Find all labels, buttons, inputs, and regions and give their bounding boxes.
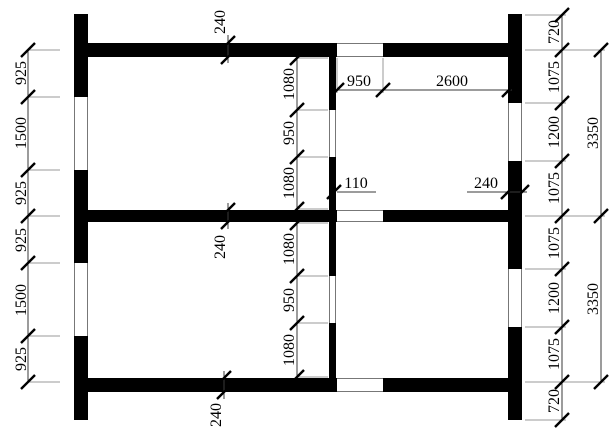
dim-label-left-4: 925 <box>13 228 30 252</box>
top-wall-left-segment <box>74 43 337 57</box>
dim-label-right-6: 1200 <box>546 282 563 314</box>
dim-label-room-width: 2600 <box>436 73 468 90</box>
floor-plan-svg: 925 1500 925 925 1500 925 720 1075 1200 … <box>0 0 616 434</box>
middle-wall-left-segment <box>74 210 337 222</box>
dim-label-left-5: 1500 <box>13 284 30 316</box>
dim-label-center-upper-1: 1080 <box>281 68 298 100</box>
dim-label-partition: 110 <box>344 175 367 192</box>
middle-wall-right-segment <box>383 210 522 222</box>
dim-label-right-7: 1075 <box>546 338 563 370</box>
dim-label-total-upper: 3350 <box>585 117 602 149</box>
top-wall-right-segment <box>383 43 522 57</box>
dim-label-bottom-wall: 240 <box>208 403 225 427</box>
dim-label-right-wall: 240 <box>474 175 498 192</box>
left-wall-upper-segment <box>74 14 88 97</box>
dim-label-left-1: 925 <box>13 61 30 85</box>
dim-label-door-width: 950 <box>347 73 371 90</box>
right-chain-extensions <box>525 15 605 420</box>
dim-label-right-4: 1075 <box>546 172 563 204</box>
dim-label-left-2: 1500 <box>13 117 30 149</box>
left-wall-lower-segment <box>74 336 88 420</box>
dim-label-center-upper-3: 1080 <box>281 167 298 199</box>
bottom-wall-left-segment <box>74 378 337 392</box>
partition-wall-upper-a <box>329 57 336 110</box>
dim-label-center-lower-2: 950 <box>281 288 298 312</box>
dim-label-right-1: 720 <box>546 20 563 44</box>
dim-label-total-lower: 3350 <box>585 283 602 315</box>
partition-wall-lower-a <box>329 222 336 276</box>
dim-label-center-lower-1: 1080 <box>281 233 298 265</box>
dim-label-middle-wall: 240 <box>212 235 229 259</box>
dim-label-right-2: 1075 <box>546 61 563 93</box>
floor-plan-drawing: 925 1500 925 925 1500 925 720 1075 1200 … <box>0 0 616 434</box>
dim-label-top-wall: 240 <box>212 10 229 34</box>
partition-wall-lower-b <box>329 323 336 378</box>
left-wall-middle-segment <box>74 170 88 263</box>
right-wall-middle-segment <box>508 161 522 269</box>
center-lower-chain-extensions <box>297 223 328 377</box>
dim-label-right-3: 1200 <box>546 116 563 148</box>
right-wall-lower-segment <box>508 327 522 420</box>
dim-label-right-5: 1075 <box>546 227 563 259</box>
dim-label-right-8: 720 <box>546 389 563 413</box>
partition-wall-upper-b <box>329 157 336 210</box>
bottom-wall-right-segment <box>383 378 522 392</box>
dim-label-left-6: 925 <box>13 347 30 371</box>
center-upper-chain-extensions <box>297 58 328 209</box>
dim-label-center-lower-3: 1080 <box>281 334 298 366</box>
dim-label-left-3: 925 <box>13 181 30 205</box>
dim-label-center-upper-2: 950 <box>281 121 298 145</box>
